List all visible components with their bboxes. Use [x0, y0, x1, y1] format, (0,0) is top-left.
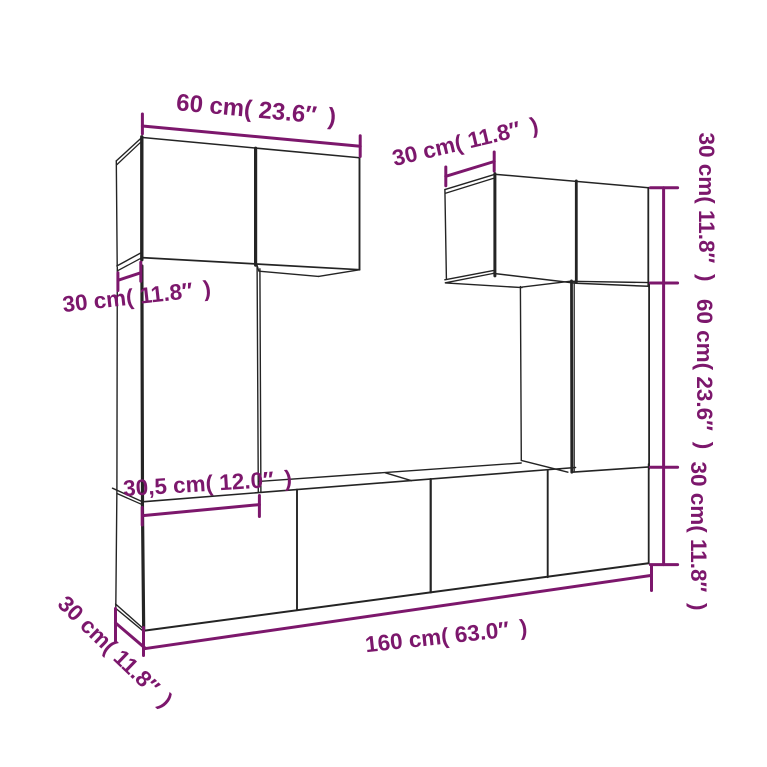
svg-text:30 cm( 11.8″ ): 30 cm( 11.8″ )	[694, 132, 719, 281]
svg-text:30 cm( 11.8″ ): 30 cm( 11.8″ )	[686, 461, 711, 610]
svg-text:60 cm( 23.6″ ): 60 cm( 23.6″ )	[692, 299, 717, 449]
